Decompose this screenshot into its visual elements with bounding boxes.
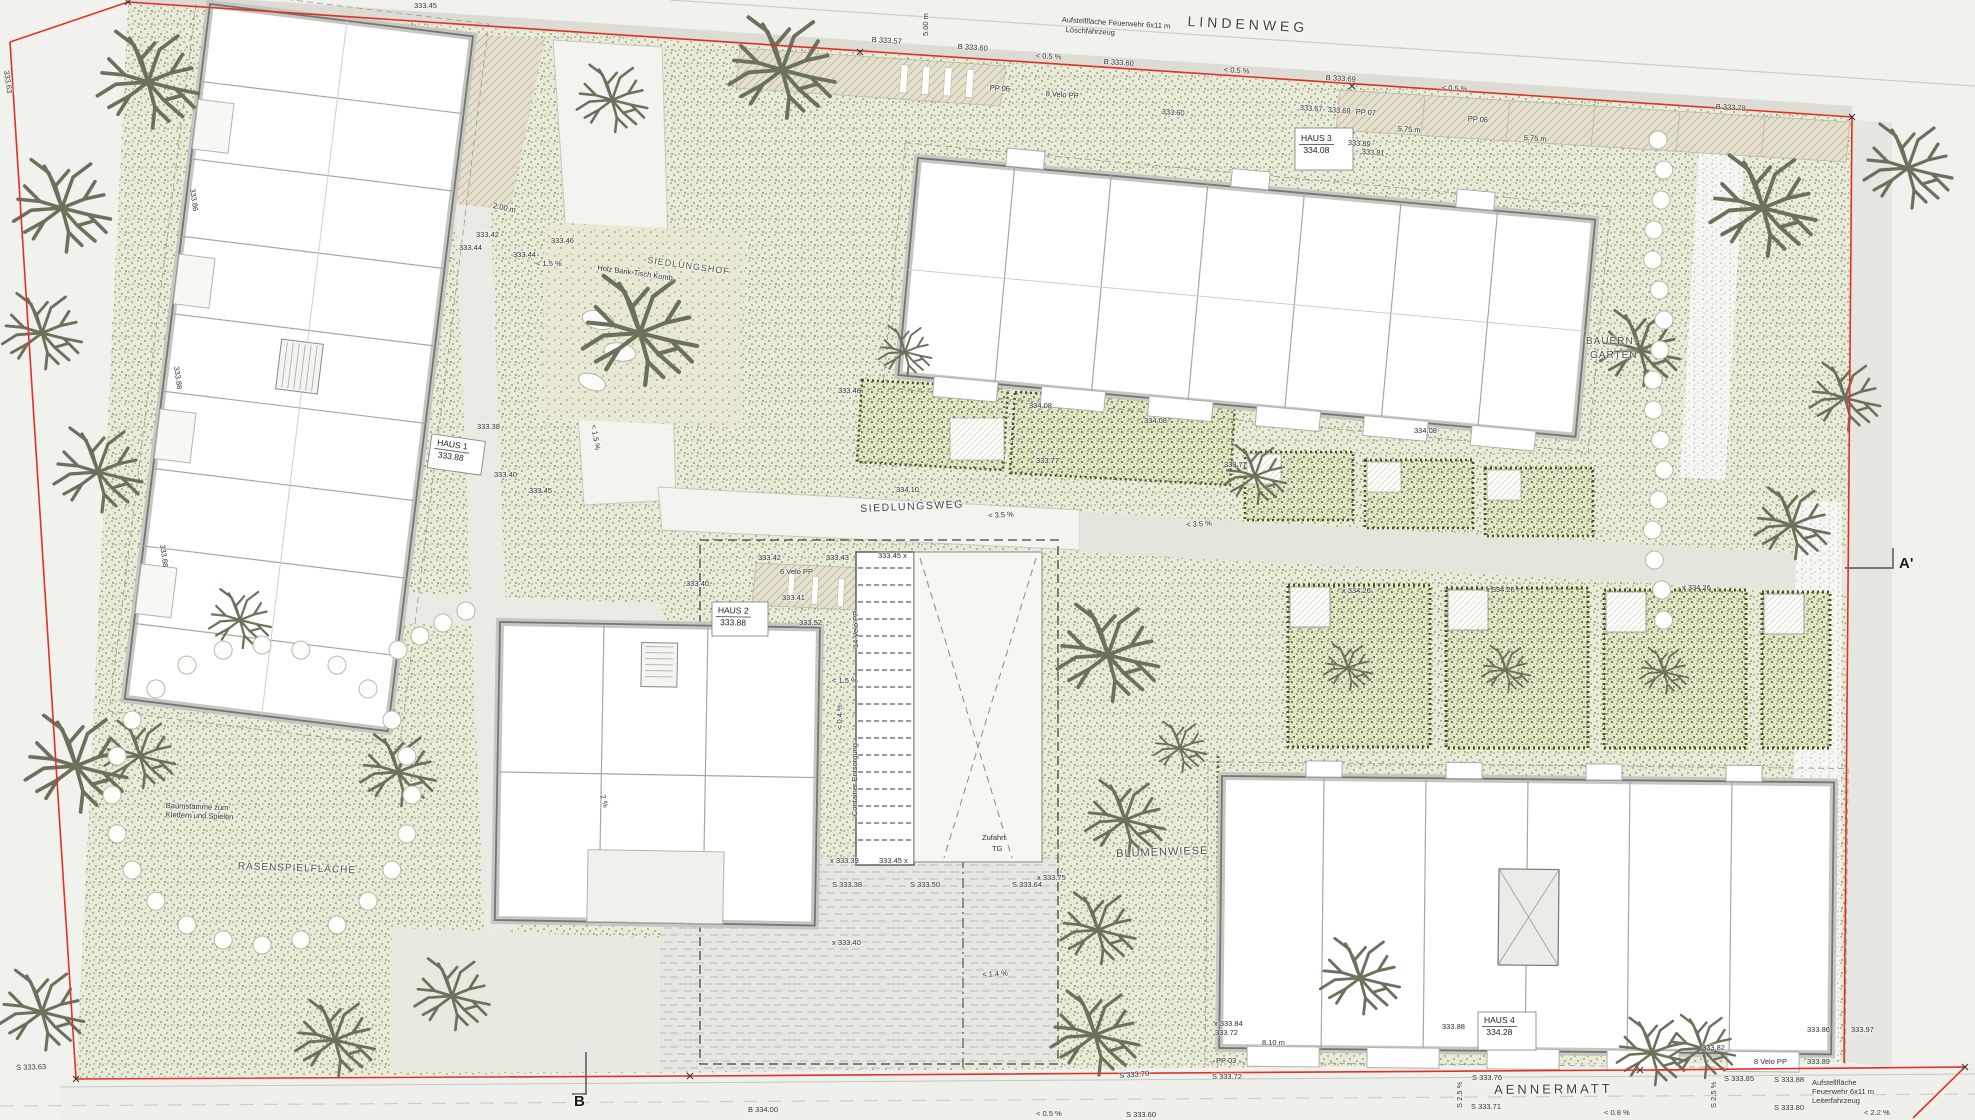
stepping-stone — [108, 747, 126, 765]
stepping-stone — [403, 786, 421, 804]
stepping-stone — [178, 656, 196, 674]
stepping-stone — [434, 614, 452, 632]
site-plan: LINDENWEGSIEDLUNGSWEGAENNERMATTSIEDLUNGS… — [0, 0, 1975, 1120]
stepping-stone — [383, 861, 401, 879]
stepping-stone — [1644, 401, 1662, 419]
stepping-stone — [1645, 551, 1663, 569]
site-plan-drawing — [0, 0, 1975, 1120]
stepping-stone — [253, 936, 271, 954]
garage-stall-strip — [856, 552, 914, 865]
stepping-stone — [1649, 131, 1667, 149]
stepping-stone — [1652, 431, 1670, 449]
stepping-stone — [398, 747, 416, 765]
stepping-stone — [1652, 191, 1670, 209]
stepping-stone — [1651, 341, 1669, 359]
stepping-stone — [359, 680, 377, 698]
stepping-stone — [1650, 281, 1668, 299]
stepping-stone — [389, 641, 407, 659]
stepping-stone — [1644, 251, 1662, 269]
stepping-stone — [398, 825, 416, 843]
stepping-stone — [383, 711, 401, 729]
stepping-stone — [1643, 521, 1661, 539]
stepping-stone — [1655, 311, 1673, 329]
stepping-stone — [292, 931, 310, 949]
area-south-haus2 — [390, 928, 662, 1072]
stepping-stone — [253, 636, 271, 654]
stepping-stone — [214, 931, 232, 949]
stepping-stone — [178, 916, 196, 934]
stepping-stone — [147, 680, 165, 698]
stepping-stone — [328, 916, 346, 934]
stepping-stone — [147, 892, 165, 910]
stepping-stone — [292, 641, 310, 659]
stepping-stone — [1653, 581, 1671, 599]
stepping-stone — [123, 861, 141, 879]
stepping-stone — [103, 786, 121, 804]
stepping-stone — [1655, 611, 1673, 629]
stepping-stone — [328, 656, 346, 674]
stepping-stone — [123, 711, 141, 729]
stepping-stone — [1645, 221, 1663, 239]
stepping-stone — [457, 602, 475, 620]
stepping-stone — [359, 892, 377, 910]
stepping-stone — [411, 627, 429, 645]
haus-2-building — [495, 622, 820, 926]
stepping-stone — [1650, 491, 1668, 509]
stepping-stone — [1655, 461, 1673, 479]
stepping-stone — [108, 825, 126, 843]
stepping-stone — [214, 641, 232, 659]
garage-ramp — [914, 552, 1042, 862]
stepping-stone — [1644, 371, 1662, 389]
stepping-stone — [1655, 161, 1673, 179]
